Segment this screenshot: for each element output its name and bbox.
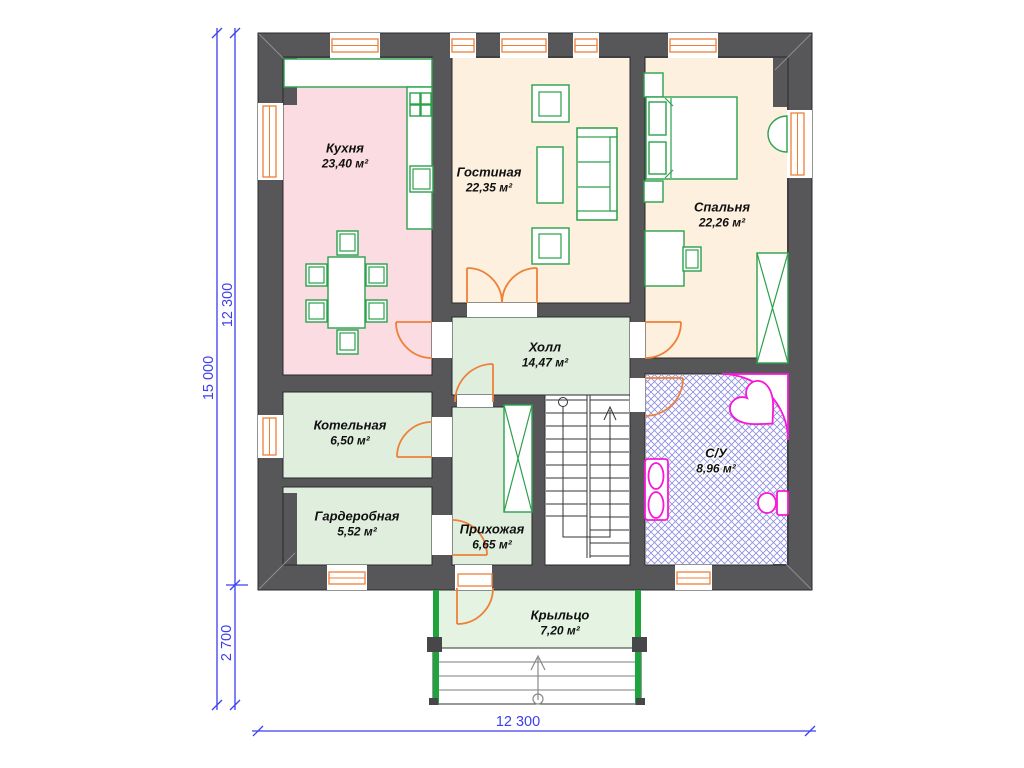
wardrobe-icon xyxy=(757,253,788,363)
floor-plan: Кухня 23,40 м² Гостиная 22,35 м² Спальня… xyxy=(0,0,1024,768)
stove-icon xyxy=(410,93,431,116)
bed xyxy=(646,97,737,179)
dimension-label-overall-height: 15 000 xyxy=(201,356,217,400)
double-sink-icon xyxy=(645,459,668,520)
room-name: С/У xyxy=(696,445,736,461)
tv-icon xyxy=(768,116,787,152)
room-area: 8,96 м² xyxy=(696,462,736,477)
dining-table xyxy=(306,231,387,354)
wardrobe-icon xyxy=(504,405,532,512)
room-label-porch: Крыльцо 7,20 м² xyxy=(531,607,590,638)
room-area: 22,26 м² xyxy=(694,216,750,231)
plan-detail-layer xyxy=(0,0,1024,768)
dimension-label-main-height: 12 300 xyxy=(220,283,236,327)
room-area: 5,52 м² xyxy=(315,525,400,540)
room-label-bathroom: С/У 8,96 м² xyxy=(696,445,736,476)
room-name: Спальня xyxy=(694,199,750,215)
room-label-bedroom: Спальня 22,26 м² xyxy=(694,199,750,230)
armchair xyxy=(532,85,569,122)
room-name: Гостиная xyxy=(457,164,522,180)
entry-door xyxy=(457,574,493,624)
room-label-entry: Прихожая 6,65 м² xyxy=(460,521,525,552)
desk xyxy=(645,231,701,286)
door-arc xyxy=(396,268,683,624)
armchair xyxy=(532,228,569,264)
room-label-kitchen: Кухня 23,40 м² xyxy=(322,140,368,171)
sofa xyxy=(577,128,617,220)
room-area: 6,65 м² xyxy=(460,538,525,553)
room-area: 22,35 м² xyxy=(457,181,522,196)
room-name: Гардеробная xyxy=(315,508,400,524)
room-area: 23,40 м² xyxy=(322,157,368,172)
room-name: Котельная xyxy=(314,417,387,433)
room-area: 6,50 м² xyxy=(314,434,387,449)
staircase xyxy=(545,395,629,565)
room-name: Крыльцо xyxy=(531,607,590,623)
toilet-icon xyxy=(758,491,788,515)
room-label-hall: Холл 14,47 м² xyxy=(522,339,568,370)
room-label-living: Гостиная 22,35 м² xyxy=(457,164,522,195)
nightstand xyxy=(644,181,663,202)
room-area: 7,20 м² xyxy=(531,624,590,639)
room-name: Прихожая xyxy=(460,521,525,537)
nightstand xyxy=(644,73,663,97)
dimension-label-porch-height: 2 700 xyxy=(219,625,235,661)
room-label-wardrobe: Гардеробная 5,52 м² xyxy=(315,508,400,539)
room-area: 14,47 м² xyxy=(522,356,568,371)
dimension-label-overall-width: 12 300 xyxy=(496,714,540,730)
room-name: Холл xyxy=(522,339,568,355)
room-label-boiler: Котельная 6,50 м² xyxy=(314,417,387,448)
room-name: Кухня xyxy=(322,140,368,156)
coffee-table xyxy=(537,147,563,203)
kitchen-sink-icon xyxy=(410,166,433,192)
